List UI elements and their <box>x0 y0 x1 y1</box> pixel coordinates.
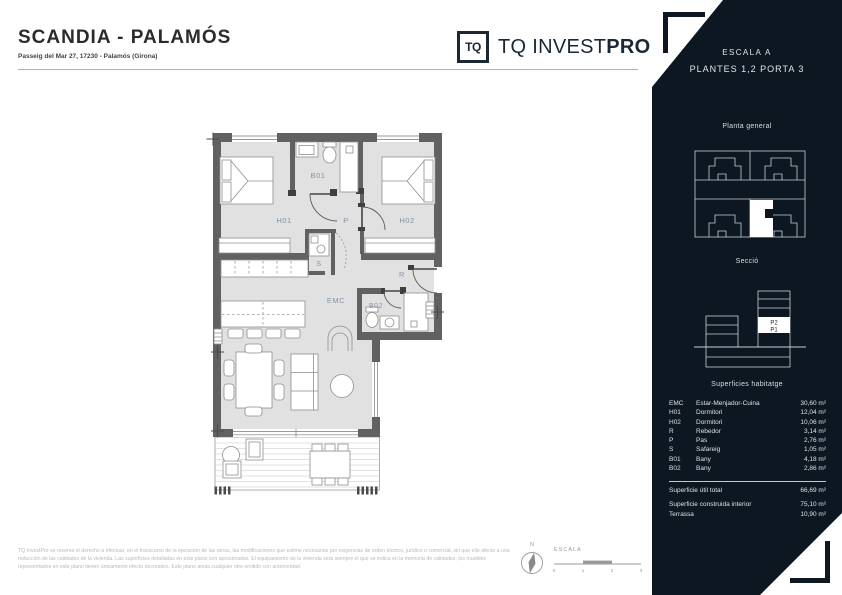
kitchen-counter-icon <box>221 260 308 277</box>
room-code: P <box>669 437 696 444</box>
table-row: H01 Dormitori 12,04 m² <box>669 409 826 418</box>
room-area: 2,76 m² <box>804 437 826 444</box>
toilet-icon <box>366 307 378 328</box>
bed-icon <box>220 157 273 204</box>
compass-and-scale: N ESCALA 0 1 2 3 <box>508 534 648 588</box>
planta-general-title: Planta general <box>652 123 842 130</box>
room-area: 3,14 m² <box>804 428 826 435</box>
brand-logo: TQ TQ INVESTPRO <box>457 31 651 63</box>
side-table-icon <box>331 375 354 398</box>
floor-plan-drawing: B01 H01 P H02 S EMC B02 R <box>195 110 465 510</box>
seccio-diagram: P2 P1 <box>692 280 808 374</box>
corner-bracket-icon <box>790 541 830 583</box>
bed-icon <box>382 157 435 204</box>
room-area: 10,06 m² <box>800 419 826 426</box>
room-code: H01 <box>669 409 696 416</box>
room-code: H02 <box>669 419 696 426</box>
scale-tick: 2 <box>611 568 614 574</box>
room-area: 1,05 m² <box>804 446 826 453</box>
room-label-emc: EMC <box>327 296 345 305</box>
room-area: 2,86 m² <box>804 465 826 472</box>
room-name: Dormitori <box>696 419 800 426</box>
room-label-p: P <box>343 216 349 225</box>
terrace-area-row: Terrassa 10,90 m² <box>669 511 826 520</box>
built-area-row: Superficie construida interior 75,10 m² <box>669 501 826 510</box>
scale-tick: 3 <box>640 568 643 574</box>
scale-label: ESCALA <box>554 547 582 553</box>
seccio-title: Secció <box>652 258 842 265</box>
table-row: EMC Estar-Menjador-Cuina 30,60 m² <box>669 400 826 409</box>
built-area-label: Superficie construida interior <box>669 501 800 508</box>
corner-triangle-bottom <box>760 513 842 595</box>
total-useful-area-row: Superficie útil total 66,69 m² <box>669 481 826 494</box>
room-label-h01: H01 <box>276 216 291 225</box>
info-sidebar: ESCALA A PLANTES 1,2 PORTA 3 Planta gene… <box>652 0 842 595</box>
room-label-h02: H02 <box>399 216 414 225</box>
brand-name-regular: TQ INVEST <box>498 36 606 58</box>
legal-disclaimer: TQ InvestPro se reserva el derecho a efe… <box>18 547 514 571</box>
toilet-icon <box>323 142 336 163</box>
room-code: B01 <box>669 456 696 463</box>
room-area: 12,04 m² <box>800 409 826 416</box>
room-code: B02 <box>669 465 696 472</box>
extra-areas: Superficie construida interior 75,10 m² … <box>669 501 826 520</box>
sink-icon <box>380 316 399 329</box>
terrace-area-value: 10,90 m² <box>800 511 826 518</box>
total-value: 66,69 m² <box>800 487 826 494</box>
room-area: 4,18 m² <box>804 456 826 463</box>
total-label: Superficie útil total <box>669 487 800 494</box>
brand-name-bold: PRO <box>606 36 650 58</box>
room-code: EMC <box>669 400 696 407</box>
planta-general-diagram <box>694 150 806 240</box>
escala-label: ESCALA A <box>652 48 842 57</box>
shower-column-icon <box>340 142 358 192</box>
brand-logo-text: TQ INVESTPRO <box>498 36 651 59</box>
room-area: 30,60 m² <box>800 400 826 407</box>
table-row: R Rebedor 3,14 m² <box>669 428 826 437</box>
terrace-area-label: Terrassa <box>669 511 800 518</box>
seccio-label-p2: P2 <box>770 321 778 327</box>
room-name: Safareig <box>696 446 804 453</box>
brand-logo-monogram: TQ <box>465 40 481 54</box>
room-name: Bany <box>696 456 804 463</box>
room-code: S <box>669 446 696 453</box>
compass-north-label: N <box>530 542 534 548</box>
sofa-icon <box>291 354 318 410</box>
address-subtitle: Passeig del Mar 27, 17230 - Palamós (Gir… <box>18 53 157 60</box>
surfaces-table-title: Superficies habitatge <box>652 381 842 388</box>
radiator-icon <box>426 302 434 318</box>
room-code: R <box>669 428 696 435</box>
table-row: B01 Bany 4,18 m² <box>669 456 826 465</box>
table-row: S Safareig 1,05 m² <box>669 446 826 455</box>
wardrobe-icon <box>365 238 435 253</box>
room-name: Rebedor <box>696 428 804 435</box>
built-area-value: 75,10 m² <box>800 501 826 508</box>
header-divider <box>18 69 638 70</box>
page-title: SCANDIA - PALAMÓS <box>18 27 231 49</box>
scale-tick: 1 <box>582 568 585 574</box>
room-name: Pas <box>696 437 804 444</box>
room-label-b01: B01 <box>311 171 326 180</box>
wardrobe-icon <box>219 238 290 253</box>
seccio-label-p1: P1 <box>770 328 778 334</box>
closet-icon <box>404 293 428 331</box>
room-name: Dormitori <box>696 409 800 416</box>
radiator-icon <box>214 329 222 344</box>
table-row: B02 Bany 2,86 m² <box>669 465 826 474</box>
room-label-b02: B02 <box>369 303 383 310</box>
washing-machine-icon <box>309 234 329 256</box>
terrace <box>215 437 380 495</box>
table-row: P Pas 2,76 m² <box>669 437 826 446</box>
room-name: Bany <box>696 465 804 472</box>
table-row: H02 Dormitori 10,06 m² <box>669 419 826 428</box>
corner-bracket-icon <box>663 12 705 53</box>
compass-icon: N <box>522 542 543 574</box>
terrace-dining-table <box>310 451 350 478</box>
highlighted-unit <box>750 200 773 237</box>
brand-logo-icon: TQ <box>457 31 489 63</box>
room-label-r: R <box>399 270 405 279</box>
scale-bar: ESCALA 0 1 2 3 <box>553 547 643 574</box>
room-name: Estar-Menjador-Cuina <box>696 400 800 407</box>
surfaces-table: EMC Estar-Menjador-Cuina 30,60 m² H01 Do… <box>669 400 826 520</box>
room-label-s: S <box>316 261 321 268</box>
scale-tick: 0 <box>553 568 556 574</box>
plantes-porta-label: PLANTES 1,2 PORTA 3 <box>652 64 842 74</box>
plan-sheet: SCANDIA - PALAMÓS Passeig del Mar 27, 17… <box>0 0 842 595</box>
sink-icon <box>296 142 318 157</box>
